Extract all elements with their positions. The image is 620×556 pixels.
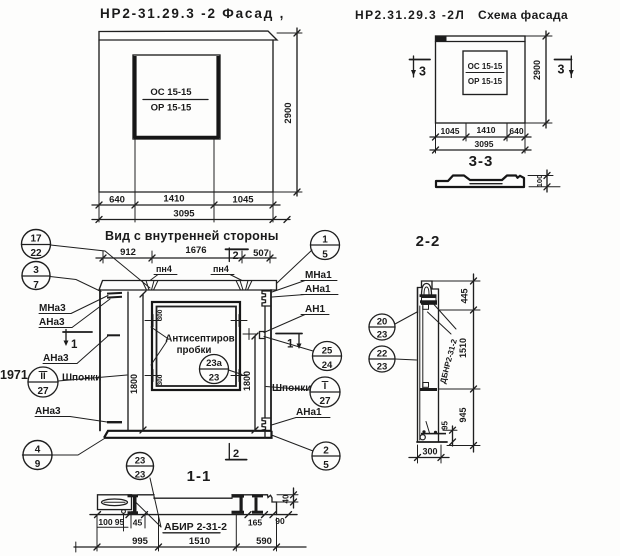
svg-text:2: 2 <box>233 448 239 460</box>
svg-text:22: 22 <box>377 349 388 360</box>
svg-text:945: 945 <box>458 407 468 422</box>
svg-text:1800: 1800 <box>129 374 139 394</box>
svg-text:23: 23 <box>135 456 146 467</box>
svg-text:пн4: пн4 <box>213 264 229 274</box>
svg-text:300: 300 <box>422 447 437 457</box>
svg-text:пробки: пробки <box>177 345 212 356</box>
svg-text:24: 24 <box>322 360 333 371</box>
svg-text:27: 27 <box>37 386 49 397</box>
svg-text:3095: 3095 <box>475 139 494 149</box>
svg-text:5: 5 <box>322 250 328 261</box>
svg-text:1045: 1045 <box>441 126 460 136</box>
svg-text:АНа3: АНа3 <box>35 406 61 417</box>
svg-text:100: 100 <box>98 517 112 527</box>
svg-text:27: 27 <box>319 396 331 407</box>
svg-text:АНа3: АНа3 <box>39 317 65 328</box>
svg-text:3-3: 3-3 <box>469 153 494 170</box>
svg-text:Антисептиров: Антисептиров <box>165 334 234 345</box>
svg-text:АН1: АН1 <box>305 304 325 315</box>
svg-text:45: 45 <box>133 518 143 528</box>
svg-text:165: 165 <box>248 518 262 528</box>
svg-text:995: 995 <box>132 536 149 547</box>
svg-text:95: 95 <box>441 421 450 430</box>
svg-text:2900: 2900 <box>283 102 294 123</box>
svg-text:3: 3 <box>33 265 39 276</box>
svg-text:II: II <box>40 371 45 382</box>
svg-text:АБИР 2-31-2: АБИР 2-31-2 <box>164 521 227 533</box>
svg-text:2: 2 <box>233 250 239 262</box>
svg-text:3: 3 <box>558 63 565 77</box>
svg-text:1971: 1971 <box>0 368 28 382</box>
svg-text:640: 640 <box>509 126 523 136</box>
svg-text:2: 2 <box>323 446 329 457</box>
svg-text:1800: 1800 <box>242 371 252 391</box>
svg-text:4: 4 <box>35 445 41 456</box>
svg-text:23: 23 <box>135 470 146 481</box>
svg-text:640: 640 <box>109 195 125 206</box>
svg-text:пн4: пн4 <box>156 264 172 274</box>
svg-text:Схема фасада: Схема фасада <box>478 8 568 22</box>
svg-text:95: 95 <box>115 517 125 527</box>
svg-text:1045: 1045 <box>232 195 254 206</box>
svg-text:ДБНР2-31-2: ДБНР2-31-2 <box>438 338 459 385</box>
svg-text:ОС 15-15: ОС 15-15 <box>150 87 192 98</box>
svg-text:1410: 1410 <box>477 125 496 135</box>
svg-text:МНа3: МНа3 <box>39 303 66 314</box>
svg-text:ОР 15-15: ОР 15-15 <box>151 103 192 114</box>
svg-text:300: 300 <box>157 374 164 385</box>
svg-text:40: 40 <box>282 494 291 503</box>
svg-text:АНа3: АНа3 <box>43 353 69 364</box>
svg-text:1-1: 1-1 <box>187 468 212 485</box>
svg-text:22: 22 <box>30 248 42 259</box>
svg-text:1510: 1510 <box>458 338 468 358</box>
svg-text:7: 7 <box>33 280 39 291</box>
svg-text:АНа1: АНа1 <box>305 284 331 295</box>
svg-text:МНа1: МНа1 <box>305 270 332 281</box>
svg-text:9: 9 <box>35 459 41 470</box>
svg-text:507: 507 <box>253 248 269 259</box>
svg-text:300: 300 <box>157 309 164 320</box>
svg-text:912: 912 <box>120 247 136 258</box>
svg-text:1: 1 <box>322 235 328 246</box>
svg-text:1510: 1510 <box>189 536 210 547</box>
svg-text:23: 23 <box>377 330 388 341</box>
svg-text:23а: 23а <box>206 358 223 369</box>
svg-text:НР2.31.29.3 -2Л: НР2.31.29.3 -2Л <box>355 8 465 22</box>
svg-text:ОС 15-15: ОС 15-15 <box>468 62 503 71</box>
svg-text:2900: 2900 <box>532 60 542 80</box>
svg-text:АНа1: АНа1 <box>296 407 322 418</box>
svg-text:590: 590 <box>256 536 272 547</box>
svg-text:Вид с внутренней стороны: Вид с внутренней стороны <box>105 229 279 243</box>
svg-text:25: 25 <box>322 346 333 357</box>
svg-text:3095: 3095 <box>173 209 195 220</box>
svg-text:100: 100 <box>535 175 544 188</box>
svg-text:5: 5 <box>323 460 329 471</box>
svg-text:1410: 1410 <box>163 194 184 205</box>
svg-text:1: 1 <box>71 339 78 351</box>
svg-text:1676: 1676 <box>185 245 206 256</box>
svg-text:2-2: 2-2 <box>416 233 441 250</box>
svg-text:23: 23 <box>377 362 388 373</box>
svg-text:ОР 15-15: ОР 15-15 <box>468 77 503 86</box>
svg-text:20: 20 <box>377 317 388 328</box>
svg-text:3: 3 <box>419 65 426 79</box>
svg-text:445: 445 <box>460 288 470 303</box>
svg-text:I: I <box>324 381 327 392</box>
svg-text:23: 23 <box>209 373 220 384</box>
svg-text:17: 17 <box>30 234 42 245</box>
svg-text:НР2-31.29.3 -2 Фасад ,: НР2-31.29.3 -2 Фасад , <box>100 6 285 21</box>
